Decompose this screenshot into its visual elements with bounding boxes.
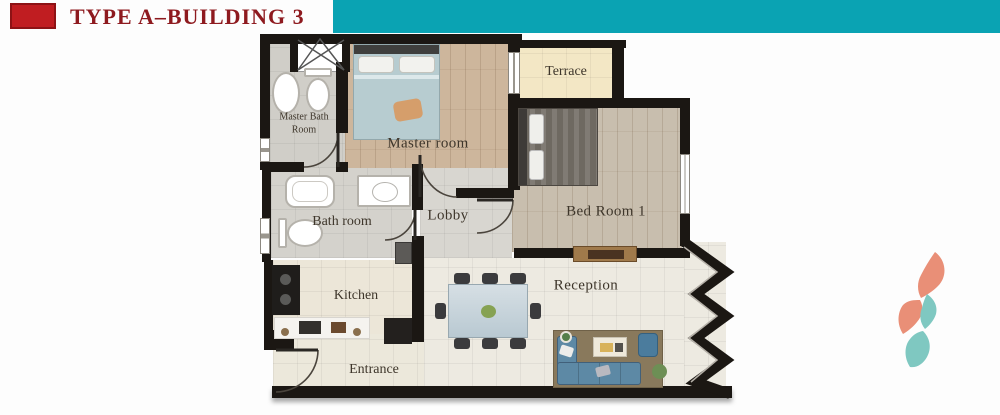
- wall: [262, 162, 304, 172]
- dining-chair: [482, 273, 498, 284]
- bowl: [281, 328, 289, 336]
- master-bed: [353, 44, 440, 140]
- room-floor-reception-bay: [684, 242, 726, 390]
- wall: [412, 164, 423, 210]
- sink-basin: [372, 182, 398, 202]
- wall: [342, 34, 350, 72]
- bed-headboard: [519, 109, 527, 185]
- room-label-bed-room-1: Bed Room 1: [566, 204, 646, 221]
- room-label-lobby: Lobby: [427, 208, 468, 225]
- wall: [456, 188, 514, 198]
- centerpiece: [481, 305, 496, 318]
- wall: [516, 40, 626, 48]
- table-tray: [600, 343, 613, 352]
- dining-chair: [482, 338, 498, 349]
- toilet-tank: [278, 218, 287, 248]
- bed-headboard: [354, 45, 439, 54]
- tv-console: [573, 246, 637, 262]
- sink: [272, 72, 300, 114]
- wall: [336, 162, 348, 172]
- room-label-reception: Reception: [554, 278, 618, 295]
- room-label-master-room: Master room: [387, 136, 468, 153]
- wall: [516, 98, 690, 108]
- page-title: TYPE A–BUILDING 3: [70, 2, 305, 32]
- bed-pillow: [358, 56, 394, 73]
- bedroom1-bed: [518, 108, 598, 186]
- table-book: [615, 343, 623, 352]
- wall: [290, 34, 298, 72]
- window: [260, 218, 270, 254]
- pouf: [638, 333, 658, 357]
- wall: [612, 40, 624, 104]
- wall: [412, 236, 424, 342]
- bed-pillow: [529, 114, 544, 144]
- bed-pillow: [399, 56, 435, 73]
- bathtub: [285, 175, 335, 208]
- dining-chair: [510, 338, 526, 349]
- wall: [272, 386, 732, 398]
- dining-chair: [530, 303, 541, 319]
- room-label-master-bath-room: Master Bath Room: [273, 112, 335, 137]
- wall: [680, 98, 690, 154]
- terrace-door-window: [508, 52, 520, 94]
- bed-pillow: [529, 150, 544, 180]
- header-teal-bar: [333, 0, 1000, 33]
- room-label-kitchen: Kitchen: [334, 288, 378, 304]
- kitchen-counter: [274, 317, 370, 339]
- coffee-table: [593, 337, 627, 357]
- countertop-appliance: [299, 321, 321, 334]
- burner: [280, 294, 291, 305]
- brand-red-square: [10, 3, 56, 29]
- dining-chair: [510, 273, 526, 284]
- room-label-entrance: Entrance: [349, 362, 399, 378]
- room-label-bath-room: Bath room: [312, 214, 372, 230]
- toilet: [306, 78, 330, 112]
- bed-throw-pillow: [392, 98, 423, 123]
- vanity-sink: [357, 175, 411, 207]
- bathtub-basin: [292, 181, 328, 202]
- dining-chair: [454, 338, 470, 349]
- bowl: [353, 328, 361, 336]
- lobby-cabinet: [395, 242, 412, 264]
- floor-plan: Master room Terrace Bed Room 1 Master Ba…: [260, 34, 740, 400]
- burner: [280, 274, 291, 285]
- wall: [680, 214, 690, 246]
- wall: [336, 62, 348, 133]
- room-label-terrace: Terrace: [545, 64, 587, 80]
- bed-fold: [354, 75, 439, 79]
- potted-plant: [560, 331, 572, 343]
- potted-plant: [652, 364, 667, 379]
- countertop-appliance: [331, 322, 346, 333]
- stove: [272, 265, 300, 315]
- developer-logo: [892, 250, 952, 370]
- dining-chair: [454, 273, 470, 284]
- dining-chair: [435, 303, 446, 319]
- toilet-tank: [304, 68, 332, 77]
- window: [680, 154, 690, 214]
- tv-screen: [588, 250, 624, 259]
- wall: [508, 34, 520, 52]
- dining-table: [448, 284, 528, 338]
- window: [260, 138, 270, 162]
- wall: [260, 34, 522, 44]
- fridge: [384, 318, 412, 344]
